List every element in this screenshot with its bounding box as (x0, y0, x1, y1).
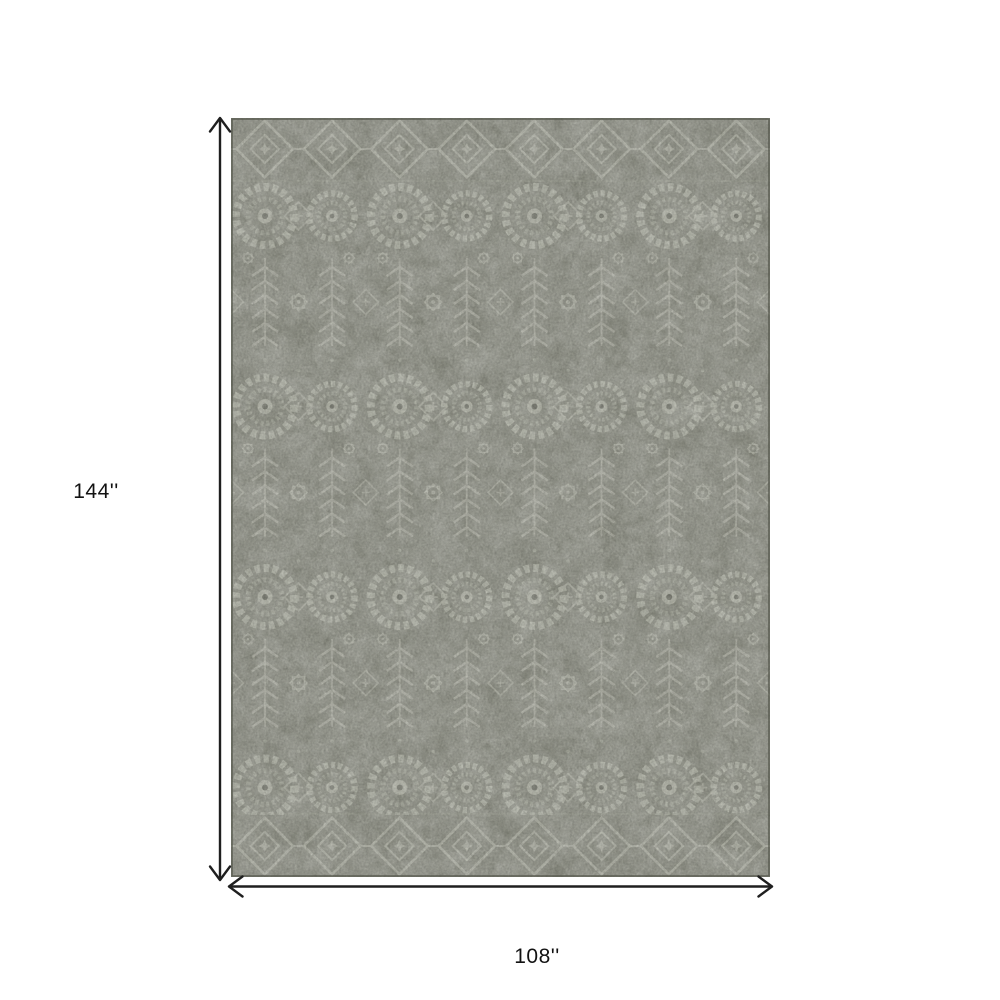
arrowhead-down-icon (210, 867, 230, 881)
product-dimension-diagram: 144'' 108'' (0, 0, 1000, 1000)
width-dimension-arrow (229, 877, 772, 897)
arrowhead-left-icon (229, 877, 243, 897)
rug-image (231, 118, 770, 877)
height-dimension-arrow (210, 118, 230, 880)
height-dimension-label: 144'' (73, 480, 119, 504)
arrowhead-right-icon (759, 877, 773, 897)
width-dimension-label: 108'' (514, 945, 560, 969)
arrowhead-up-icon (210, 118, 230, 132)
